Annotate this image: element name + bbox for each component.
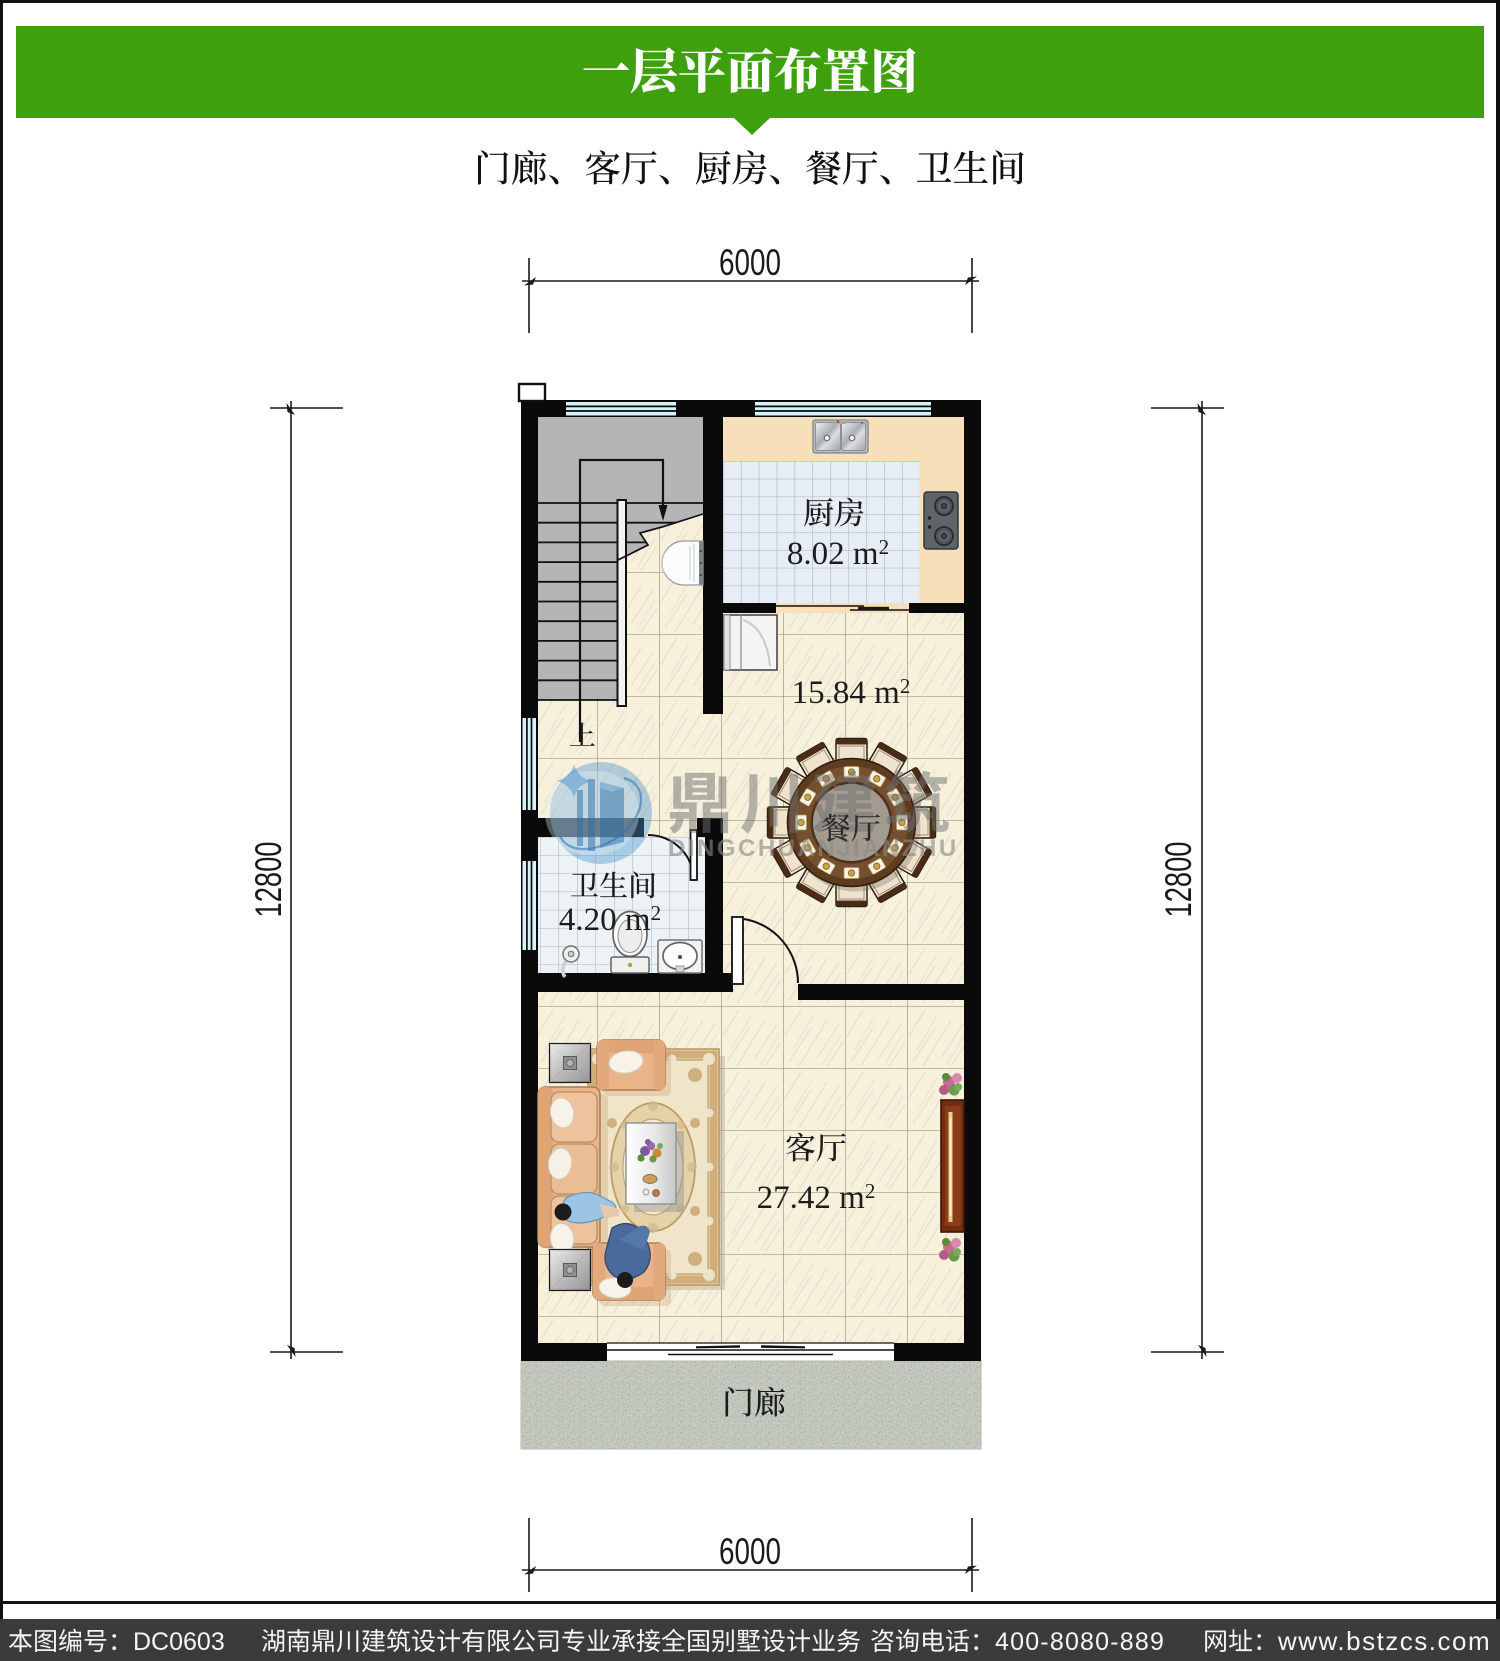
svg-text:4.20 m2: 4.20 m2 <box>559 901 661 938</box>
svg-text:15.84 m2: 15.84 m2 <box>792 674 911 711</box>
svg-text:www.bstzcs.com: www.bstzcs.com <box>1277 1626 1491 1656</box>
svg-text:DINGCHUANJIANZHU: DINGCHUANJIANZHU <box>668 835 959 862</box>
svg-text:27.42 m2: 27.42 m2 <box>757 1179 876 1216</box>
svg-text:12800: 12800 <box>248 842 289 918</box>
svg-text:6000: 6000 <box>719 1531 781 1572</box>
svg-text:400-8080-889: 400-8080-889 <box>995 1628 1165 1656</box>
svg-text:DC0603: DC0603 <box>133 1628 225 1656</box>
svg-text:6000: 6000 <box>719 242 781 283</box>
svg-text:8.02 m2: 8.02 m2 <box>787 535 889 572</box>
svg-text:12800: 12800 <box>1158 842 1199 918</box>
